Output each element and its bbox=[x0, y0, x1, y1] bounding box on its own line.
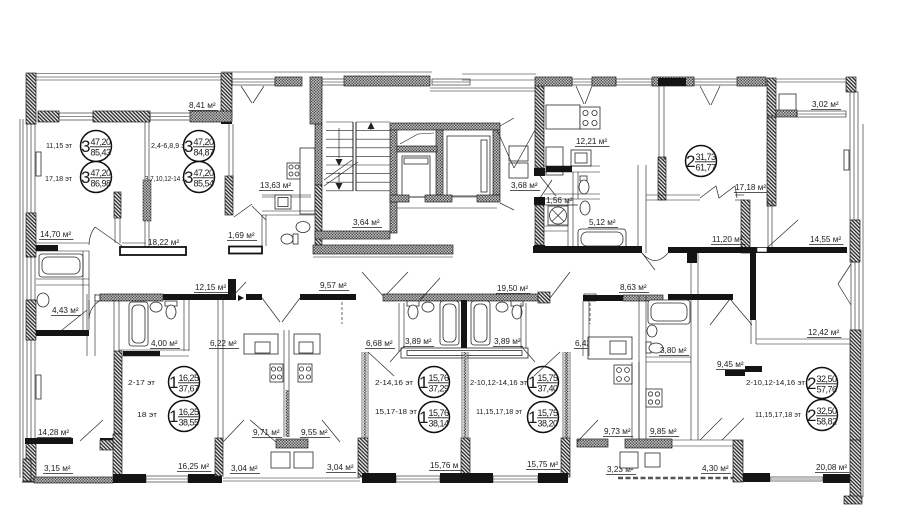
svg-text:1: 1 bbox=[419, 373, 428, 392]
svg-text:2-14,16 эт: 2-14,16 эт bbox=[375, 378, 414, 387]
svg-text:15,76: 15,76 bbox=[429, 408, 450, 418]
svg-text:31,73: 31,73 bbox=[696, 152, 717, 162]
svg-text:12,21 м²: 12,21 м² bbox=[576, 137, 607, 146]
svg-text:15,17-18 эт: 15,17-18 эт bbox=[375, 407, 418, 416]
svg-text:14,70 м²: 14,70 м² bbox=[40, 230, 71, 239]
svg-text:3,64 м²: 3,64 м² bbox=[353, 218, 380, 227]
svg-text:15,75 м²: 15,75 м² bbox=[527, 460, 558, 469]
svg-text:8,41 м²: 8,41 м² bbox=[189, 101, 216, 110]
svg-text:9,85 м²: 9,85 м² bbox=[650, 427, 677, 436]
svg-text:3: 3 bbox=[81, 168, 90, 187]
svg-text:38,55: 38,55 bbox=[179, 418, 200, 428]
svg-text:32,50: 32,50 bbox=[817, 374, 838, 384]
svg-text:2-17 эт: 2-17 эт bbox=[128, 378, 156, 387]
svg-text:3: 3 bbox=[184, 137, 193, 156]
svg-text:17,18 м²: 17,18 м² bbox=[735, 183, 766, 192]
svg-text:3: 3 bbox=[184, 168, 193, 187]
svg-text:18,22 м²: 18,22 м² bbox=[148, 238, 179, 247]
svg-text:11,15,17,18 эт: 11,15,17,18 эт bbox=[755, 410, 801, 419]
svg-text:13,63 м²: 13,63 м² bbox=[260, 181, 291, 190]
svg-text:58,82: 58,82 bbox=[817, 417, 838, 427]
svg-text:8,63 м²: 8,63 м² bbox=[620, 283, 647, 292]
svg-text:47,20: 47,20 bbox=[194, 137, 215, 147]
svg-text:19,50 м²: 19,50 м² bbox=[497, 284, 528, 293]
svg-text:37,67: 37,67 bbox=[179, 384, 200, 394]
svg-text:12,15 м²: 12,15 м² bbox=[195, 283, 226, 292]
svg-text:47,20: 47,20 bbox=[91, 137, 112, 147]
svg-text:2: 2 bbox=[686, 152, 695, 171]
svg-text:1: 1 bbox=[528, 408, 537, 427]
svg-text:85,54: 85,54 bbox=[194, 179, 215, 189]
svg-text:4,00 м²: 4,00 м² bbox=[151, 339, 178, 348]
svg-text:3,68 м²: 3,68 м² bbox=[511, 181, 538, 190]
svg-text:1: 1 bbox=[169, 373, 178, 392]
svg-text:1,69 м²: 1,69 м² bbox=[228, 231, 255, 240]
svg-text:12,42 м²: 12,42 м² bbox=[808, 328, 839, 337]
svg-text:9,55 м²: 9,55 м² bbox=[301, 428, 328, 437]
svg-text:38,14: 38,14 bbox=[429, 419, 450, 429]
svg-text:15,75: 15,75 bbox=[538, 373, 559, 383]
svg-text:3,7,10,12-14 эт: 3,7,10,12-14 эт bbox=[145, 174, 188, 183]
svg-text:11,15 эт: 11,15 эт bbox=[46, 141, 72, 150]
svg-text:14,28 м²: 14,28 м² bbox=[38, 428, 69, 437]
svg-text:47,20: 47,20 bbox=[91, 168, 112, 178]
svg-text:32,50: 32,50 bbox=[817, 406, 838, 416]
svg-text:47,20: 47,20 bbox=[194, 168, 215, 178]
svg-text:15,76: 15,76 bbox=[429, 373, 450, 383]
svg-text:3,80 м²: 3,80 м² bbox=[660, 346, 687, 355]
svg-text:3,89 м²: 3,89 м² bbox=[405, 337, 432, 346]
svg-text:9,57 м²: 9,57 м² bbox=[320, 281, 347, 290]
svg-text:57,76: 57,76 bbox=[817, 385, 838, 395]
svg-text:3,02 м²: 3,02 м² bbox=[812, 100, 839, 109]
svg-text:1: 1 bbox=[169, 407, 178, 426]
svg-text:37,40: 37,40 bbox=[538, 384, 559, 394]
svg-text:16,25: 16,25 bbox=[179, 407, 200, 417]
svg-text:1,56 м²: 1,56 м² bbox=[546, 196, 573, 205]
svg-text:16,25 м²: 16,25 м² bbox=[178, 462, 209, 471]
svg-text:2: 2 bbox=[807, 374, 816, 393]
svg-text:3,89 м²: 3,89 м² bbox=[494, 337, 521, 346]
svg-text:20,08 м²: 20,08 м² bbox=[816, 463, 847, 472]
svg-text:16,25: 16,25 bbox=[179, 373, 200, 383]
svg-text:3,15 м²: 3,15 м² bbox=[44, 464, 71, 473]
svg-text:9,71 м²: 9,71 м² bbox=[253, 428, 280, 437]
svg-text:5,12 м²: 5,12 м² bbox=[589, 218, 616, 227]
svg-text:18 эт: 18 эт bbox=[137, 410, 158, 419]
svg-text:14,55 м²: 14,55 м² bbox=[810, 235, 841, 244]
svg-text:3: 3 bbox=[81, 137, 90, 156]
svg-text:11,20 м²: 11,20 м² bbox=[712, 235, 743, 244]
svg-text:1: 1 bbox=[419, 408, 428, 427]
svg-text:4,30 м²: 4,30 м² bbox=[702, 464, 729, 473]
svg-text:38,20: 38,20 bbox=[538, 419, 559, 429]
svg-text:17,18 эт: 17,18 эт bbox=[45, 174, 72, 183]
svg-text:6,22 м²: 6,22 м² bbox=[210, 339, 237, 348]
svg-text:15,76 м: 15,76 м bbox=[430, 461, 459, 470]
svg-text:9,45 м²: 9,45 м² bbox=[717, 360, 744, 369]
svg-text:2-10,12-14,16 эт: 2-10,12-14,16 эт bbox=[470, 378, 528, 387]
svg-text:86,98: 86,98 bbox=[91, 179, 112, 189]
svg-text:37,29: 37,29 bbox=[429, 384, 450, 394]
svg-text:15,75: 15,75 bbox=[538, 408, 559, 418]
svg-text:84,87: 84,87 bbox=[194, 148, 215, 158]
svg-text:3,04 м²: 3,04 м² bbox=[327, 463, 354, 472]
svg-text:2-10,12-14,16 эт: 2-10,12-14,16 эт bbox=[746, 378, 806, 387]
svg-text:9,73 м²: 9,73 м² bbox=[604, 427, 631, 436]
svg-text:85,43: 85,43 bbox=[91, 148, 112, 158]
svg-text:2: 2 bbox=[807, 406, 816, 425]
svg-text:4,43 м²: 4,43 м² bbox=[52, 306, 79, 315]
svg-text:11,15,17,18 эт: 11,15,17,18 эт bbox=[476, 407, 522, 416]
svg-text:61,77: 61,77 bbox=[696, 163, 717, 173]
svg-text:6,68 м²: 6,68 м² bbox=[366, 339, 393, 348]
svg-text:3,04 м²: 3,04 м² bbox=[231, 464, 258, 473]
svg-text:1: 1 bbox=[528, 373, 537, 392]
